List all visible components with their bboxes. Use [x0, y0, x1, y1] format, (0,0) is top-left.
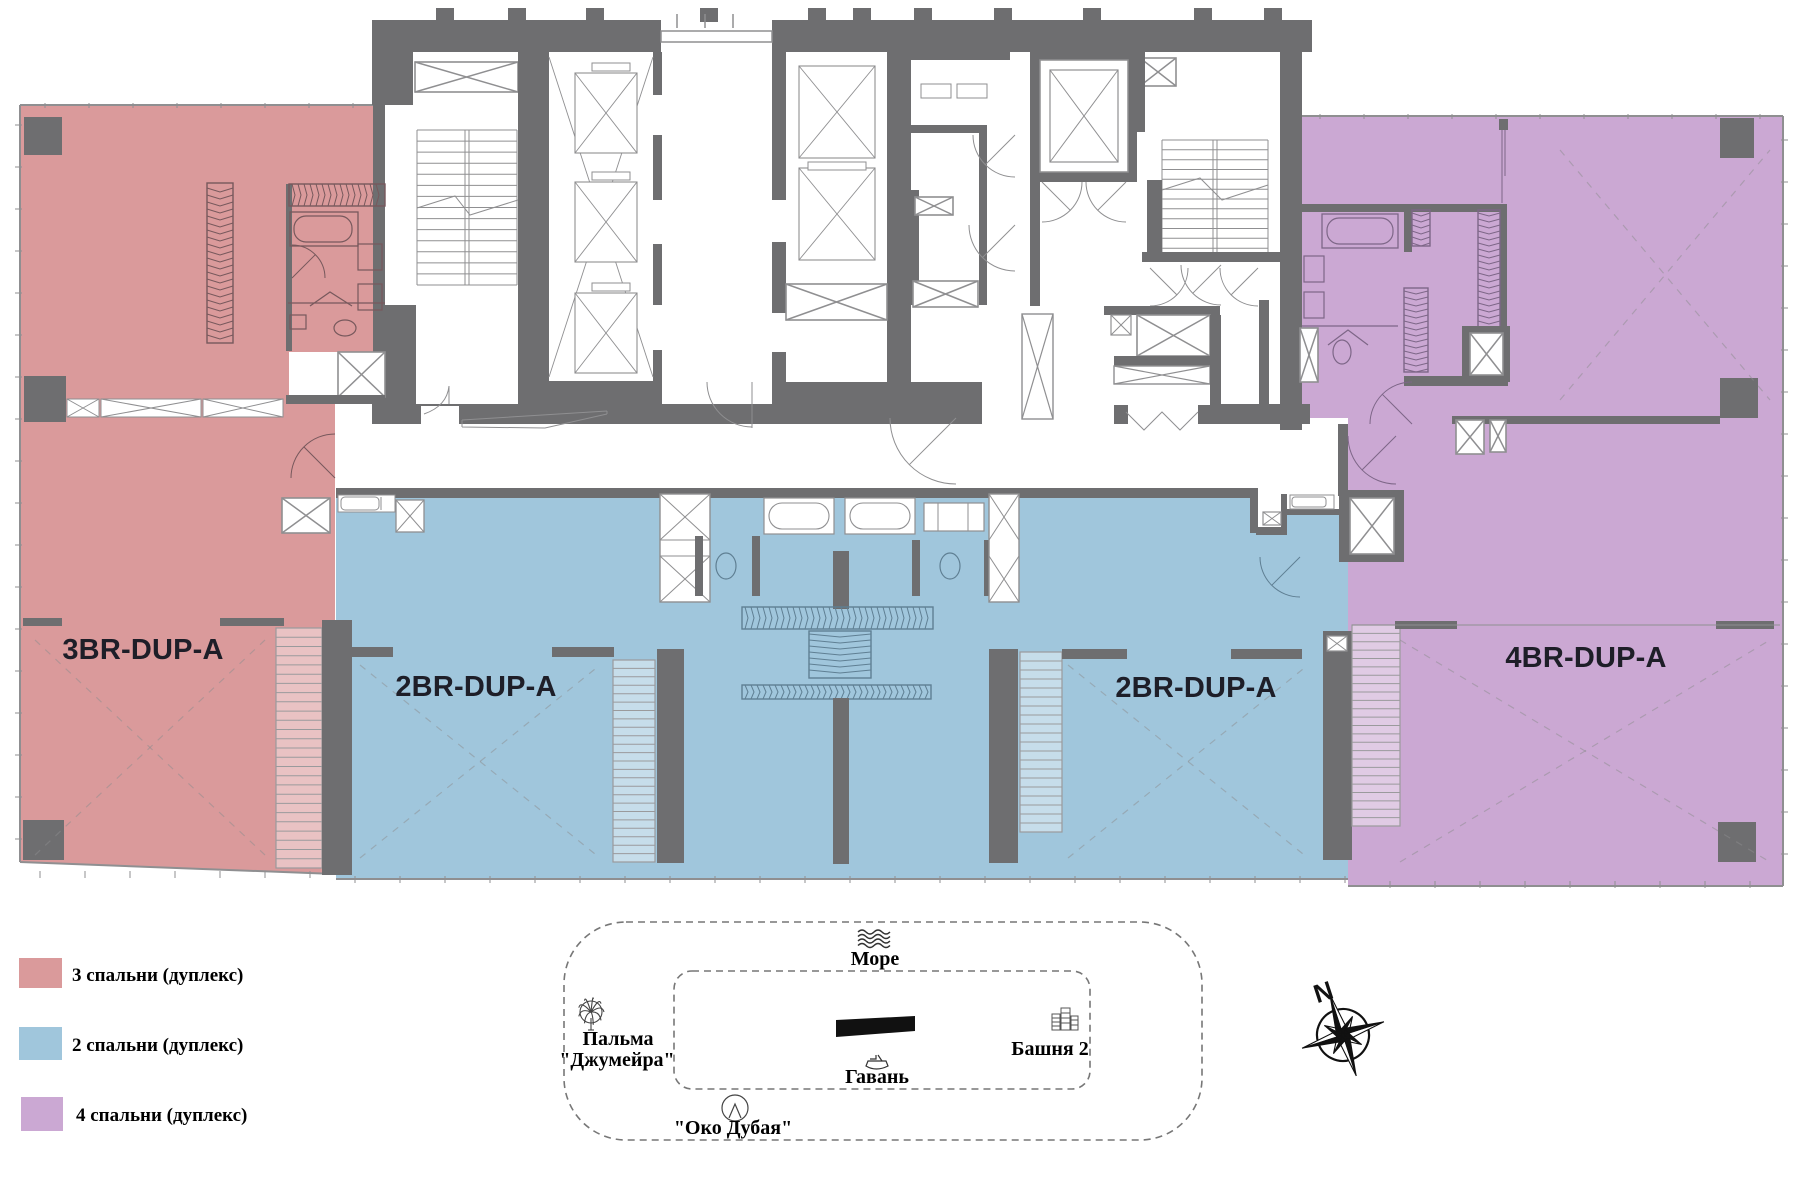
- svg-text:Море: Море: [851, 948, 900, 970]
- svg-text:Пальма: Пальма: [582, 1028, 653, 1050]
- svg-text:"Джумейра": "Джумейра": [559, 1049, 674, 1071]
- svg-text:3BR-DUP-A: 3BR-DUP-A: [62, 634, 223, 666]
- svg-text:4 спальни (дуплекс): 4 спальни (дуплекс): [76, 1105, 247, 1126]
- svg-text:Башня 2: Башня 2: [1011, 1038, 1088, 1060]
- svg-text:N: N: [1310, 975, 1337, 1009]
- svg-text:Гавань: Гавань: [845, 1066, 909, 1088]
- svg-text:2BR-DUP-A: 2BR-DUP-A: [395, 671, 556, 703]
- svg-text:2 спальни (дуплекс): 2 спальни (дуплекс): [72, 1035, 243, 1056]
- svg-text:4BR-DUP-A: 4BR-DUP-A: [1505, 642, 1666, 674]
- svg-text:2BR-DUP-A: 2BR-DUP-A: [1115, 672, 1276, 704]
- svg-text:"Око Дубая": "Око Дубая": [674, 1117, 792, 1139]
- svg-text:3 спальни (дуплекс): 3 спальни (дуплекс): [72, 965, 243, 986]
